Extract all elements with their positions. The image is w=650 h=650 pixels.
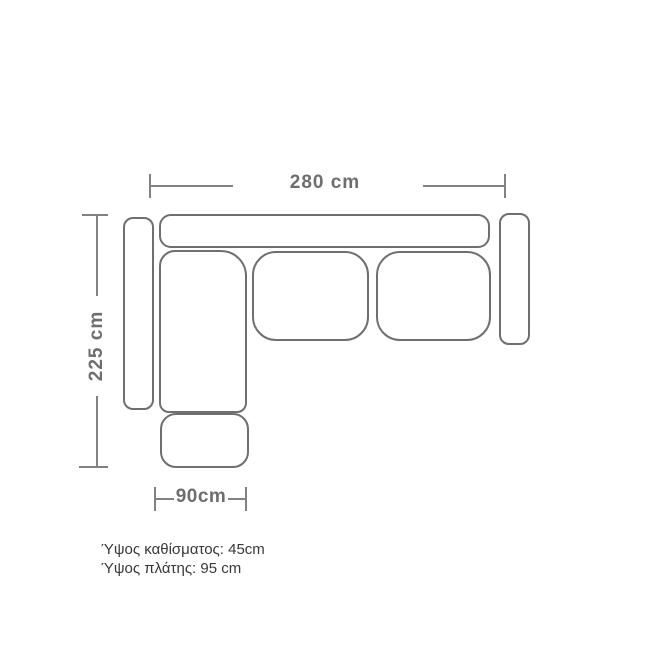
- depth-dimension-line-top: [96, 215, 98, 296]
- depth-dimension-tick-top: [82, 214, 108, 216]
- height-notes: Ύψος καθίσματος: 45cm Ύψος πλάτης: 95 cm: [101, 540, 265, 578]
- width-dimension-line-right: [423, 185, 506, 187]
- chaise-seat: [159, 250, 247, 413]
- footstool-dimension-label: 90cm: [156, 486, 246, 508]
- back-cushion: [159, 214, 490, 248]
- depth-dimension-line-bottom: [96, 396, 98, 467]
- depth-dimension-tick-bottom: [79, 466, 108, 468]
- left-armrest: [123, 217, 154, 410]
- right-armrest: [499, 213, 530, 345]
- depth-dimension-label: 225 cm: [86, 311, 108, 381]
- middle-seat-cushion: [252, 251, 369, 341]
- width-dimension-label: 280 cm: [240, 172, 410, 194]
- footstool: [160, 413, 249, 468]
- sofa-dimension-diagram: 280 cm 225 cm 90cm Ύψος καθίσματος: 45cm…: [0, 0, 650, 650]
- back-height-note: Ύψος πλάτης: 95 cm: [101, 559, 265, 578]
- right-seat-cushion: [376, 251, 491, 341]
- width-dimension-line-left: [149, 185, 233, 187]
- seat-height-note: Ύψος καθίσματος: 45cm: [101, 540, 265, 559]
- width-dimension-tick-right: [504, 174, 506, 198]
